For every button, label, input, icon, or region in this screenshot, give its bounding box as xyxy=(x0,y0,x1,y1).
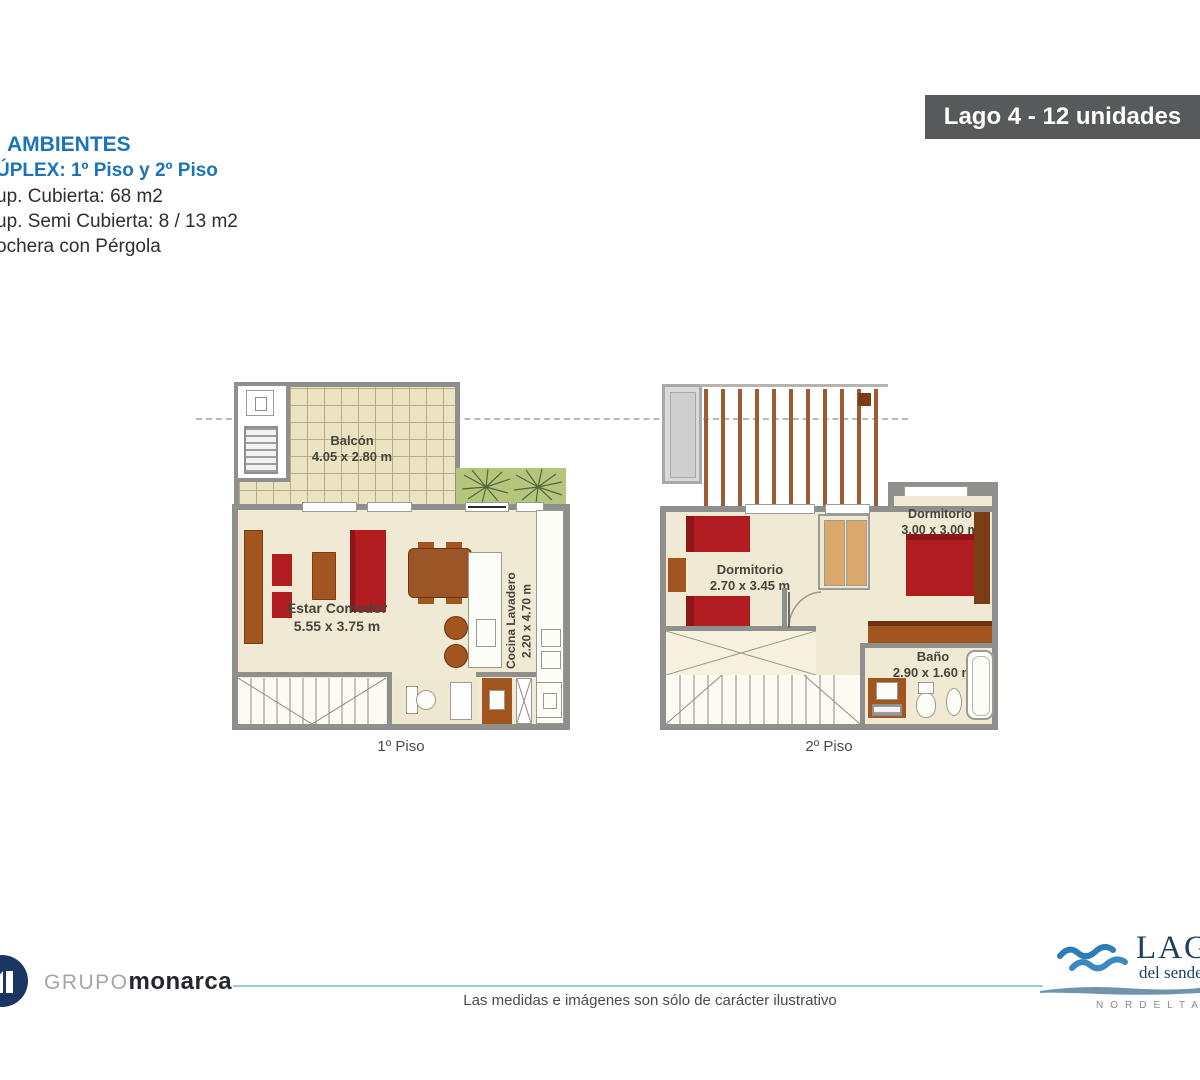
bench xyxy=(244,530,263,644)
lago-subtitle: del sendero xyxy=(1139,963,1200,983)
stairs xyxy=(238,678,386,724)
sink-icon xyxy=(476,619,496,647)
monarca-wordmark: GRUPOmonarca xyxy=(44,968,232,996)
toilet-icon xyxy=(416,690,436,710)
footer-divider xyxy=(233,985,1043,987)
bed xyxy=(906,534,974,596)
shower xyxy=(450,682,472,720)
lago-title: LAGO xyxy=(1136,930,1200,967)
closet-door xyxy=(824,520,845,586)
stool xyxy=(444,644,468,668)
headboard xyxy=(974,512,990,604)
floorplan-2: Dormitorio 2.70 x 3.45 m Dormitorio 3.00… xyxy=(660,378,998,730)
window xyxy=(367,502,412,512)
dining-table xyxy=(408,548,472,598)
cooktop-icon xyxy=(541,629,561,647)
page: Lago 4 - 12 unidades AMBIENTES ÚPLEX: 1º… xyxy=(0,0,1200,1080)
bed xyxy=(686,516,750,552)
interior-wall xyxy=(238,672,392,677)
planter xyxy=(456,468,566,506)
info-duplex: ÚPLEX: 1º Piso y 2º Piso xyxy=(0,160,218,182)
door-arc-icon xyxy=(787,590,823,630)
waves-icon xyxy=(1056,942,1140,976)
door-icon xyxy=(517,679,531,723)
toilet-icon xyxy=(918,682,934,694)
void-area xyxy=(666,631,816,675)
cabinet xyxy=(872,704,902,716)
disclaimer-text: Las medidas e imágenes son sólo de carác… xyxy=(300,992,1000,1009)
pergola xyxy=(700,384,888,513)
coffee-table xyxy=(312,552,336,600)
bathroom xyxy=(394,678,478,724)
door-leaf xyxy=(468,506,506,508)
stairs xyxy=(666,675,860,724)
sink-icon xyxy=(876,682,898,700)
info-sup-cubierta: up. Cubierta: 68 m2 xyxy=(0,186,163,208)
lago-city-label: NORDELTA xyxy=(1096,1000,1200,1011)
void-x-icon xyxy=(666,631,816,675)
stairs-icon xyxy=(666,675,860,724)
window xyxy=(302,502,357,512)
brand-prefix: GRUPO xyxy=(44,971,129,995)
nightstand xyxy=(668,558,686,592)
floorplan-1-caption: 1º Piso xyxy=(232,738,570,755)
oven-icon xyxy=(541,651,561,669)
brand-name: monarca xyxy=(129,968,233,996)
water-heater-icon xyxy=(246,390,274,416)
vanity xyxy=(482,678,512,724)
window xyxy=(745,504,815,514)
kitchen-island xyxy=(468,552,502,668)
pergola-slats xyxy=(704,389,886,511)
bathtub-icon xyxy=(966,650,994,720)
room-label-estar: Estar Comedor 5.55 x 3.75 m xyxy=(262,600,412,635)
floorplan-1: Balcón 4.05 x 2.80 m xyxy=(232,378,570,730)
closet xyxy=(818,514,870,590)
louver-screen xyxy=(662,384,702,484)
louver-vent-icon xyxy=(244,426,278,474)
floorplan-2-caption: 2º Piso xyxy=(660,738,998,755)
window xyxy=(825,504,870,514)
hall-door xyxy=(516,678,532,724)
info-sup-semicubierta: up. Semi Cubierta: 8 / 13 m2 xyxy=(0,211,238,233)
interior-wall xyxy=(860,643,992,648)
interior-wall xyxy=(387,672,392,724)
info-cochera: ochera con Pérgola xyxy=(0,236,161,258)
monarca-logo-icon xyxy=(0,955,28,1007)
vanity xyxy=(868,678,906,718)
interior-wall xyxy=(860,643,865,724)
bidet-icon xyxy=(946,688,962,716)
interior-wall xyxy=(476,672,536,677)
pergola-post xyxy=(858,393,871,406)
toilet-icon xyxy=(916,692,936,718)
plant-icon xyxy=(456,468,566,506)
stairs-icon xyxy=(238,678,386,724)
armchair xyxy=(272,554,292,586)
title-banner-label: Lago 4 - 12 unidades xyxy=(944,103,1181,131)
brush-stroke-icon xyxy=(1040,984,1200,996)
stool xyxy=(444,616,468,640)
washer-icon xyxy=(536,682,562,718)
room-label-balcon: Balcón 4.05 x 2.80 m xyxy=(277,433,427,466)
dresser xyxy=(868,621,992,643)
info-ambientes: AMBIENTES xyxy=(7,133,131,157)
title-banner: Lago 4 - 12 unidades xyxy=(925,95,1200,139)
closet-door xyxy=(846,520,867,586)
sink-icon xyxy=(489,690,505,710)
